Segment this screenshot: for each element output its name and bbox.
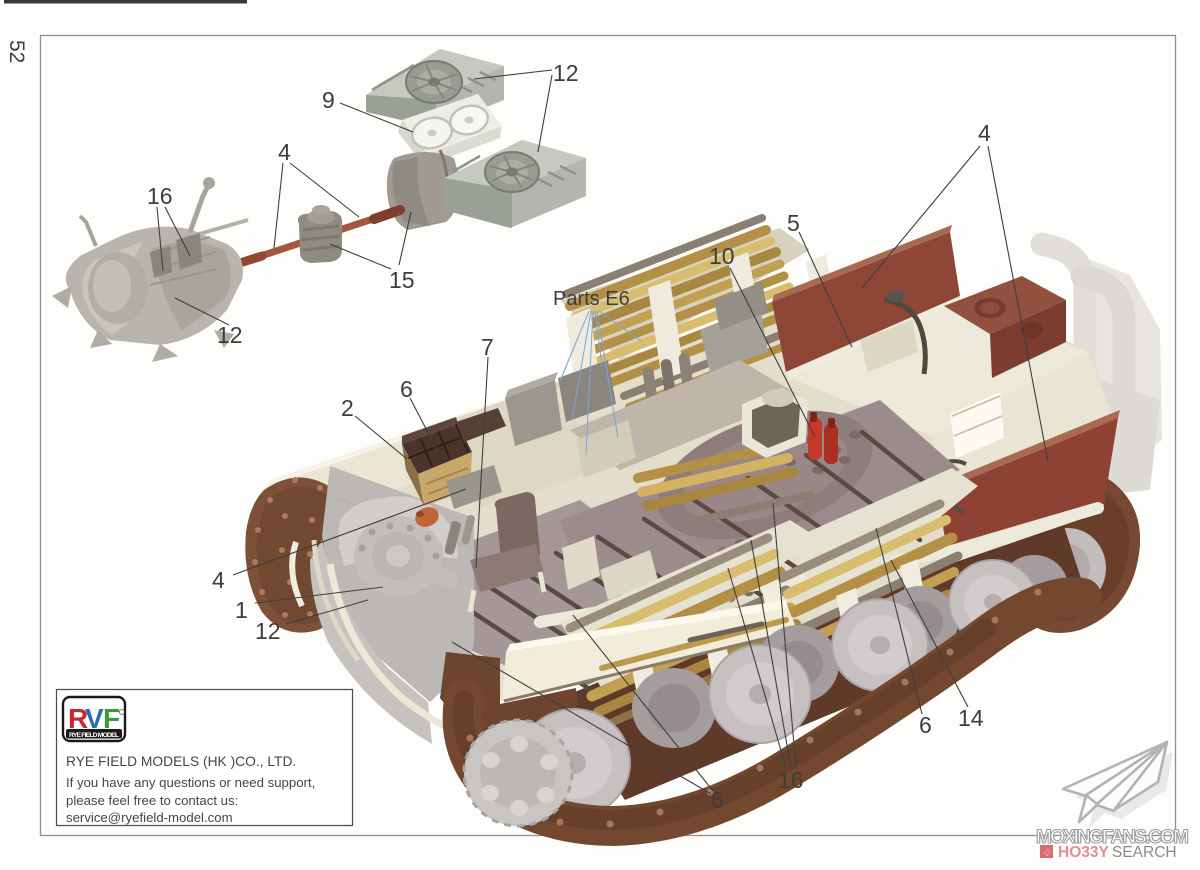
svg-text:7: 7 xyxy=(481,334,494,360)
svg-text:4: 4 xyxy=(212,567,225,593)
svg-text:2: 2 xyxy=(341,395,354,421)
svg-text:10: 10 xyxy=(709,243,735,269)
svg-text:RYE FIELD MODEL: RYE FIELD MODEL xyxy=(69,732,119,739)
svg-text:16: 16 xyxy=(147,183,173,209)
svg-text:HO33Y: HO33Y xyxy=(1058,844,1109,861)
svg-text:6: 6 xyxy=(400,376,413,402)
svg-text:52: 52 xyxy=(5,40,28,63)
svg-text:4: 4 xyxy=(978,120,991,146)
svg-text:service@ryefield-model.com: service@ryefield-model.com xyxy=(66,810,233,825)
svg-text:12: 12 xyxy=(217,322,243,348)
svg-text:If you have any questions or n: If you have any questions or need suppor… xyxy=(66,775,315,790)
svg-text:16: 16 xyxy=(778,767,804,793)
svg-text:12: 12 xyxy=(553,60,579,86)
svg-text:please feel free to contact us: please feel free to contact us: xyxy=(66,793,238,808)
svg-text:15: 15 xyxy=(389,267,415,293)
svg-text:♢: ♢ xyxy=(1043,848,1052,859)
svg-text:14: 14 xyxy=(958,705,984,731)
svg-text:12: 12 xyxy=(255,618,281,644)
svg-text:SEARCH: SEARCH xyxy=(1112,844,1177,861)
svg-text:6: 6 xyxy=(919,712,932,738)
svg-text:6: 6 xyxy=(711,787,724,813)
svg-text:Parts E6: Parts E6 xyxy=(553,288,630,310)
svg-text:1: 1 xyxy=(235,597,248,623)
svg-text:5: 5 xyxy=(787,210,800,236)
svg-text:RYE FIELD MODELS (HK )CO., LTD: RYE FIELD MODELS (HK )CO., LTD. xyxy=(66,754,296,769)
svg-text:9: 9 xyxy=(322,87,335,113)
svg-text:4: 4 xyxy=(278,139,291,165)
